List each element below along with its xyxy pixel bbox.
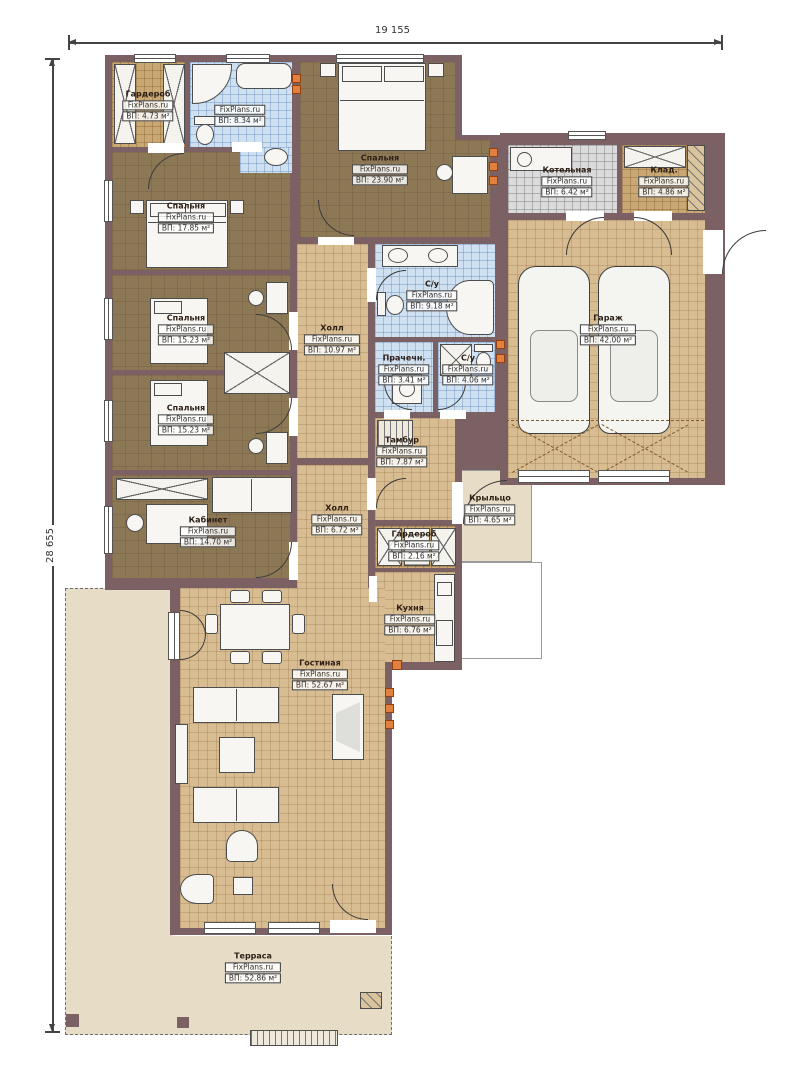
chair bbox=[248, 290, 264, 306]
room-area: ВП: 23.90 м² bbox=[352, 175, 408, 185]
desk bbox=[266, 432, 288, 464]
radiator bbox=[292, 74, 301, 83]
watermark: FixPlans.ru bbox=[304, 334, 360, 344]
dimension-label-height: 28 655 bbox=[45, 525, 56, 566]
room-area: ВП: 6.76 м² bbox=[384, 625, 435, 635]
dimension-arrow-down bbox=[49, 1024, 55, 1032]
watermark: FixPlans.ru bbox=[311, 514, 362, 524]
watermark: FixPlans.ru bbox=[158, 212, 214, 222]
room-area: ВП: 8.34 м² bbox=[214, 116, 265, 126]
door-opening bbox=[703, 230, 723, 274]
room-area: ВП: 10.97 м² bbox=[304, 345, 360, 355]
side-table bbox=[233, 877, 253, 895]
radiator bbox=[385, 704, 394, 713]
room-name: Спальня bbox=[167, 313, 205, 322]
room-name: Гараж bbox=[593, 313, 623, 322]
window bbox=[226, 54, 270, 63]
window bbox=[104, 298, 113, 340]
room-name: Спальня bbox=[167, 403, 205, 412]
watermark: FixPlans.ru bbox=[464, 504, 515, 514]
nightstand bbox=[130, 200, 144, 214]
room-area: ВП: 15.23 м² bbox=[158, 425, 214, 435]
room-label-living: Гостиная FixPlans.ru ВП: 52.67 м² bbox=[292, 659, 348, 690]
sink bbox=[264, 148, 288, 166]
room-label-boiler: Котельная FixPlans.ru ВП: 6.42 м² bbox=[541, 166, 592, 197]
terrace-post bbox=[177, 1017, 189, 1028]
window bbox=[134, 54, 176, 63]
room-label-terrace: Терраса FixPlans.ru ВП: 52.86 м² bbox=[225, 952, 281, 983]
nightstand bbox=[320, 63, 336, 77]
radiator bbox=[385, 688, 394, 697]
coffee-table bbox=[219, 737, 255, 773]
radiator bbox=[385, 720, 394, 729]
radiator bbox=[392, 660, 402, 670]
room-area: ВП: 52.67 м² bbox=[292, 680, 348, 690]
wardrobe bbox=[116, 478, 208, 500]
garage-door bbox=[518, 470, 590, 483]
bathtub bbox=[236, 63, 292, 89]
desk bbox=[266, 282, 288, 314]
room-area: ВП: 15.23 м² bbox=[158, 335, 214, 345]
dimension-arrow-up bbox=[49, 58, 55, 66]
radiator bbox=[496, 354, 505, 363]
door-opening bbox=[367, 268, 376, 302]
room-name: Гардероб bbox=[392, 529, 437, 538]
pillow bbox=[154, 383, 182, 396]
terrace-steps bbox=[250, 1030, 338, 1046]
room-label-wardrobe-1: Гардероб FixPlans.ru ВП: 4.73 м² bbox=[122, 90, 173, 121]
toilet bbox=[196, 124, 214, 145]
window bbox=[104, 506, 113, 554]
room-name: Клад. bbox=[650, 165, 677, 174]
pillow bbox=[154, 301, 182, 314]
room-area: ВП: 52.86 м² bbox=[225, 973, 281, 983]
room-name: Гостиная bbox=[299, 658, 341, 667]
room-area: ВП: 4.65 м² bbox=[464, 515, 515, 525]
stove bbox=[436, 620, 453, 646]
chair bbox=[248, 438, 264, 454]
blanket-line bbox=[340, 100, 424, 101]
garage-marking bbox=[506, 420, 704, 421]
chair bbox=[126, 514, 144, 532]
watermark: FixPlans.ru bbox=[406, 290, 457, 300]
floor-plan: 19 155 28 655 bbox=[0, 0, 792, 1080]
room-area: ВП: 9.18 м² bbox=[406, 301, 457, 311]
door-arc-entry bbox=[722, 230, 766, 274]
room-area: ВП: 4.06 м² bbox=[442, 375, 493, 385]
pillow bbox=[384, 66, 424, 82]
watermark: FixPlans.ru bbox=[580, 324, 636, 334]
door-opening bbox=[452, 482, 463, 524]
room-label-bedroom-1785: Спальня FixPlans.ru ВП: 17.85 м² bbox=[158, 202, 214, 233]
watermark: FixPlans.ru bbox=[352, 164, 408, 174]
door-opening bbox=[367, 478, 376, 510]
room-area: ВП: 4.86 м² bbox=[638, 187, 689, 197]
window bbox=[268, 922, 320, 934]
toilet-tank bbox=[474, 344, 493, 352]
room-label-bedroom-1523a: Спальня FixPlans.ru ВП: 15.23 м² bbox=[158, 314, 214, 345]
room-label-storage: Клад. FixPlans.ru ВП: 4.86 м² bbox=[638, 166, 689, 197]
watermark: FixPlans.ru bbox=[376, 446, 427, 456]
room-name: Котельная bbox=[542, 165, 591, 174]
chair bbox=[436, 164, 453, 181]
watermark: FixPlans.ru bbox=[638, 176, 689, 186]
chair bbox=[262, 590, 282, 603]
chair bbox=[205, 614, 218, 634]
dimension-line-top bbox=[68, 42, 722, 44]
sink bbox=[428, 248, 448, 263]
room-name: Спальня bbox=[361, 153, 399, 162]
watermark: FixPlans.ru bbox=[292, 669, 348, 679]
room-name: Кухня bbox=[396, 603, 424, 612]
room-area: ВП: 2.16 м² bbox=[388, 551, 439, 561]
room-area: ВП: 14.70 м² bbox=[180, 537, 236, 547]
terrace-post bbox=[66, 1014, 79, 1027]
room-label-vestibule: Тамбур FixPlans.ru ВП: 7.87 м² bbox=[376, 436, 427, 467]
room-area: ВП: 3.41 м² bbox=[378, 375, 429, 385]
terrace-left bbox=[65, 588, 173, 1035]
watermark: FixPlans.ru bbox=[122, 100, 173, 110]
terrace-post bbox=[360, 992, 382, 1009]
sink bbox=[388, 248, 408, 263]
chair bbox=[262, 651, 282, 664]
walkway bbox=[460, 562, 542, 659]
dimension-label-width: 19 155 bbox=[372, 25, 413, 36]
chair bbox=[292, 614, 305, 634]
watermark: FixPlans.ru bbox=[541, 176, 592, 186]
tv-stand bbox=[175, 724, 188, 784]
garage-door bbox=[598, 470, 670, 483]
sofa-cushion-line bbox=[251, 479, 252, 511]
radiator bbox=[489, 162, 498, 171]
car-roof bbox=[530, 330, 578, 402]
chair bbox=[230, 590, 250, 603]
terrace-bottom bbox=[160, 936, 392, 1035]
armchair bbox=[226, 830, 258, 862]
watermark: FixPlans.ru bbox=[225, 962, 281, 972]
radiator bbox=[489, 176, 498, 185]
boiler bbox=[517, 152, 532, 167]
door-opening bbox=[440, 410, 466, 419]
room-name: С/у bbox=[425, 279, 439, 288]
door-opening bbox=[148, 143, 184, 153]
room-label-hall-upper: Холл FixPlans.ru ВП: 10.97 м² bbox=[304, 324, 360, 355]
room-area: ВП: 17.85 м² bbox=[158, 223, 214, 233]
dimension-arrow-right bbox=[714, 39, 722, 45]
dimension-arrow-left bbox=[68, 39, 76, 45]
window bbox=[336, 54, 424, 63]
room-name: Кабинет bbox=[189, 515, 228, 524]
room-name: Терраса bbox=[234, 951, 272, 960]
terrace-door-opening bbox=[168, 612, 180, 660]
room-label-bathroom-834: FixPlans.ru ВП: 8.34 м² bbox=[214, 104, 265, 127]
room-label-garage: Гараж FixPlans.ru ВП: 42.00 м² bbox=[580, 314, 636, 345]
sofa-cushion-line bbox=[236, 689, 237, 721]
watermark: FixPlans.ru bbox=[384, 614, 435, 624]
room-name: Гардероб bbox=[126, 89, 171, 98]
door-opening bbox=[384, 410, 410, 419]
watermark: FixPlans.ru bbox=[158, 324, 214, 334]
room-label-hall-lower: Холл FixPlans.ru ВП: 6.72 м² bbox=[311, 504, 362, 535]
sofa-cushion-line bbox=[236, 789, 237, 821]
radiator bbox=[496, 340, 505, 349]
room-area: ВП: 42.00 м² bbox=[580, 335, 636, 345]
door-opening bbox=[369, 576, 377, 602]
nightstand bbox=[230, 200, 244, 214]
window bbox=[104, 180, 113, 222]
room-area: ВП: 6.72 м² bbox=[311, 525, 362, 535]
window bbox=[104, 400, 113, 442]
watermark: FixPlans.ru bbox=[442, 364, 493, 374]
watermark: FixPlans.ru bbox=[214, 105, 265, 115]
room-label-office: Кабинет FixPlans.ru ВП: 14.70 м² bbox=[180, 516, 236, 547]
kitchen-sink bbox=[437, 582, 452, 596]
room-name: С/у bbox=[461, 353, 475, 362]
room-area: ВП: 4.73 м² bbox=[122, 111, 173, 121]
nightstand bbox=[428, 63, 444, 77]
watermark: FixPlans.ru bbox=[158, 414, 214, 424]
room-label-bathroom-406: С/у FixPlans.ru ВП: 4.06 м² bbox=[442, 354, 493, 385]
dining-table bbox=[220, 604, 290, 650]
room-name: Тамбур bbox=[385, 435, 419, 444]
window bbox=[568, 131, 606, 140]
watermark: FixPlans.ru bbox=[388, 540, 439, 550]
window bbox=[204, 922, 256, 934]
room-label-porch: Крыльцо FixPlans.ru ВП: 4.65 м² bbox=[464, 494, 515, 525]
room-name: Крыльцо bbox=[469, 493, 511, 502]
room-label-laundry: Прачечн. FixPlans.ru ВП: 3.41 м² bbox=[378, 354, 429, 385]
sofa bbox=[212, 477, 292, 513]
room-label-kitchen: Кухня FixPlans.ru ВП: 6.76 м² bbox=[384, 604, 435, 635]
room-label-bedroom-1523b: Спальня FixPlans.ru ВП: 15.23 м² bbox=[158, 404, 214, 435]
watermark: FixPlans.ru bbox=[378, 364, 429, 374]
radiator bbox=[292, 85, 301, 94]
room-label-bedroom-2390: Спальня FixPlans.ru ВП: 23.90 м² bbox=[352, 154, 408, 185]
radiator bbox=[489, 148, 498, 157]
room-name: Прачечн. bbox=[383, 353, 426, 362]
chair bbox=[230, 651, 250, 664]
pillow bbox=[342, 66, 382, 82]
room-label-bathroom-918: С/у FixPlans.ru ВП: 9.18 м² bbox=[406, 280, 457, 311]
room-area: ВП: 7.87 м² bbox=[376, 457, 427, 467]
wardrobe bbox=[224, 352, 290, 394]
watermark: FixPlans.ru bbox=[180, 526, 236, 536]
armchair bbox=[180, 874, 214, 904]
door-opening bbox=[232, 142, 262, 152]
room-label-wardrobe-2: Гардероб FixPlans.ru ВП: 2.16 м² bbox=[388, 530, 439, 561]
door-opening bbox=[318, 237, 354, 245]
room-area: ВП: 6.42 м² bbox=[541, 187, 592, 197]
desk bbox=[452, 156, 488, 194]
room-name: Холл bbox=[320, 323, 343, 332]
room-name: Спальня bbox=[167, 201, 205, 210]
room-name: Холл bbox=[325, 503, 348, 512]
door-opening bbox=[330, 920, 376, 933]
